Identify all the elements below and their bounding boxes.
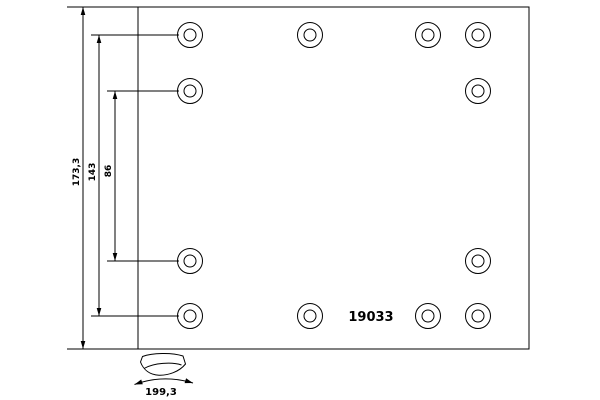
arrowhead-inner-top bbox=[113, 91, 118, 99]
rivet-hole bbox=[298, 23, 323, 48]
lining-profile-inner-curve bbox=[144, 363, 182, 368]
rivet-hole bbox=[466, 249, 491, 274]
rivet-hole bbox=[466, 304, 491, 329]
rivet-hole bbox=[304, 29, 316, 41]
rivet-hole bbox=[472, 85, 484, 97]
rivet-hole bbox=[422, 310, 434, 322]
arc-dimension-curve bbox=[135, 379, 194, 385]
rivet-hole bbox=[472, 310, 484, 322]
rivet-hole bbox=[178, 249, 203, 274]
rivet-hole bbox=[466, 79, 491, 104]
technical-drawing-page: 173,3 143 86 19033 199,3 bbox=[0, 0, 600, 400]
rivet-hole bbox=[178, 79, 203, 104]
arc-width-label: 199,3 bbox=[145, 387, 177, 398]
rivet-hole bbox=[184, 310, 196, 322]
dimension-label-inner-holes: 86 bbox=[104, 165, 114, 178]
rivet-hole bbox=[178, 304, 203, 329]
rivet-hole bbox=[298, 304, 323, 329]
arrowhead-overall-top bbox=[81, 7, 86, 15]
rivet-hole bbox=[184, 29, 196, 41]
lining-outline bbox=[138, 7, 529, 349]
dimension-label-overall: 173,3 bbox=[72, 158, 82, 186]
arrowhead-inner-bottom bbox=[113, 253, 118, 261]
rivet-hole bbox=[416, 304, 441, 329]
arrowhead-outer-bottom bbox=[97, 308, 102, 316]
brake-lining-drawing: 173,3 143 86 19033 199,3 bbox=[0, 0, 600, 400]
rivet-hole bbox=[304, 310, 316, 322]
arrowhead-arc-left bbox=[135, 380, 143, 385]
rivet-hole bbox=[184, 255, 196, 267]
rivet-hole bbox=[416, 23, 441, 48]
arrowhead-outer-top bbox=[97, 35, 102, 43]
rivet-hole bbox=[178, 23, 203, 48]
rivet-hole bbox=[184, 85, 196, 97]
rivet-hole bbox=[472, 29, 484, 41]
rivet-hole bbox=[466, 23, 491, 48]
arrowhead-arc-right bbox=[185, 378, 193, 383]
dimension-label-outer-holes: 143 bbox=[88, 163, 98, 182]
part-number: 19033 bbox=[348, 310, 393, 325]
rivet-hole bbox=[472, 255, 484, 267]
rivet-holes bbox=[178, 23, 491, 329]
rivet-hole bbox=[422, 29, 434, 41]
arrowhead-overall-bottom bbox=[81, 341, 86, 349]
